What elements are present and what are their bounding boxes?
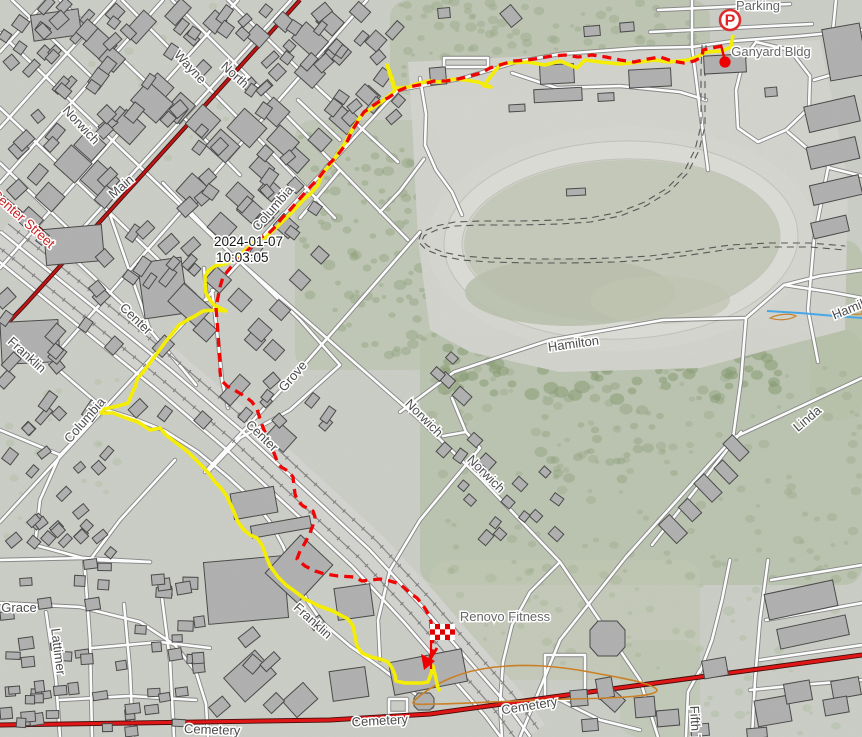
svg-text:Parking: Parking (736, 0, 780, 13)
svg-text:Renovo Fitness: Renovo Fitness (460, 609, 551, 624)
svg-text:Fifth Th: Fifth Th (687, 705, 704, 737)
svg-text:Cemetery: Cemetery (351, 712, 409, 730)
svg-text:Grace: Grace (1, 600, 36, 615)
svg-text:Cemetery: Cemetery (184, 721, 241, 737)
svg-text:2024-01-07: 2024-01-07 (214, 234, 283, 249)
svg-text:Ganyard Bldg: Ganyard Bldg (731, 44, 811, 59)
svg-text:P: P (725, 13, 736, 30)
svg-text:10:03:05: 10:03:05 (216, 250, 269, 265)
